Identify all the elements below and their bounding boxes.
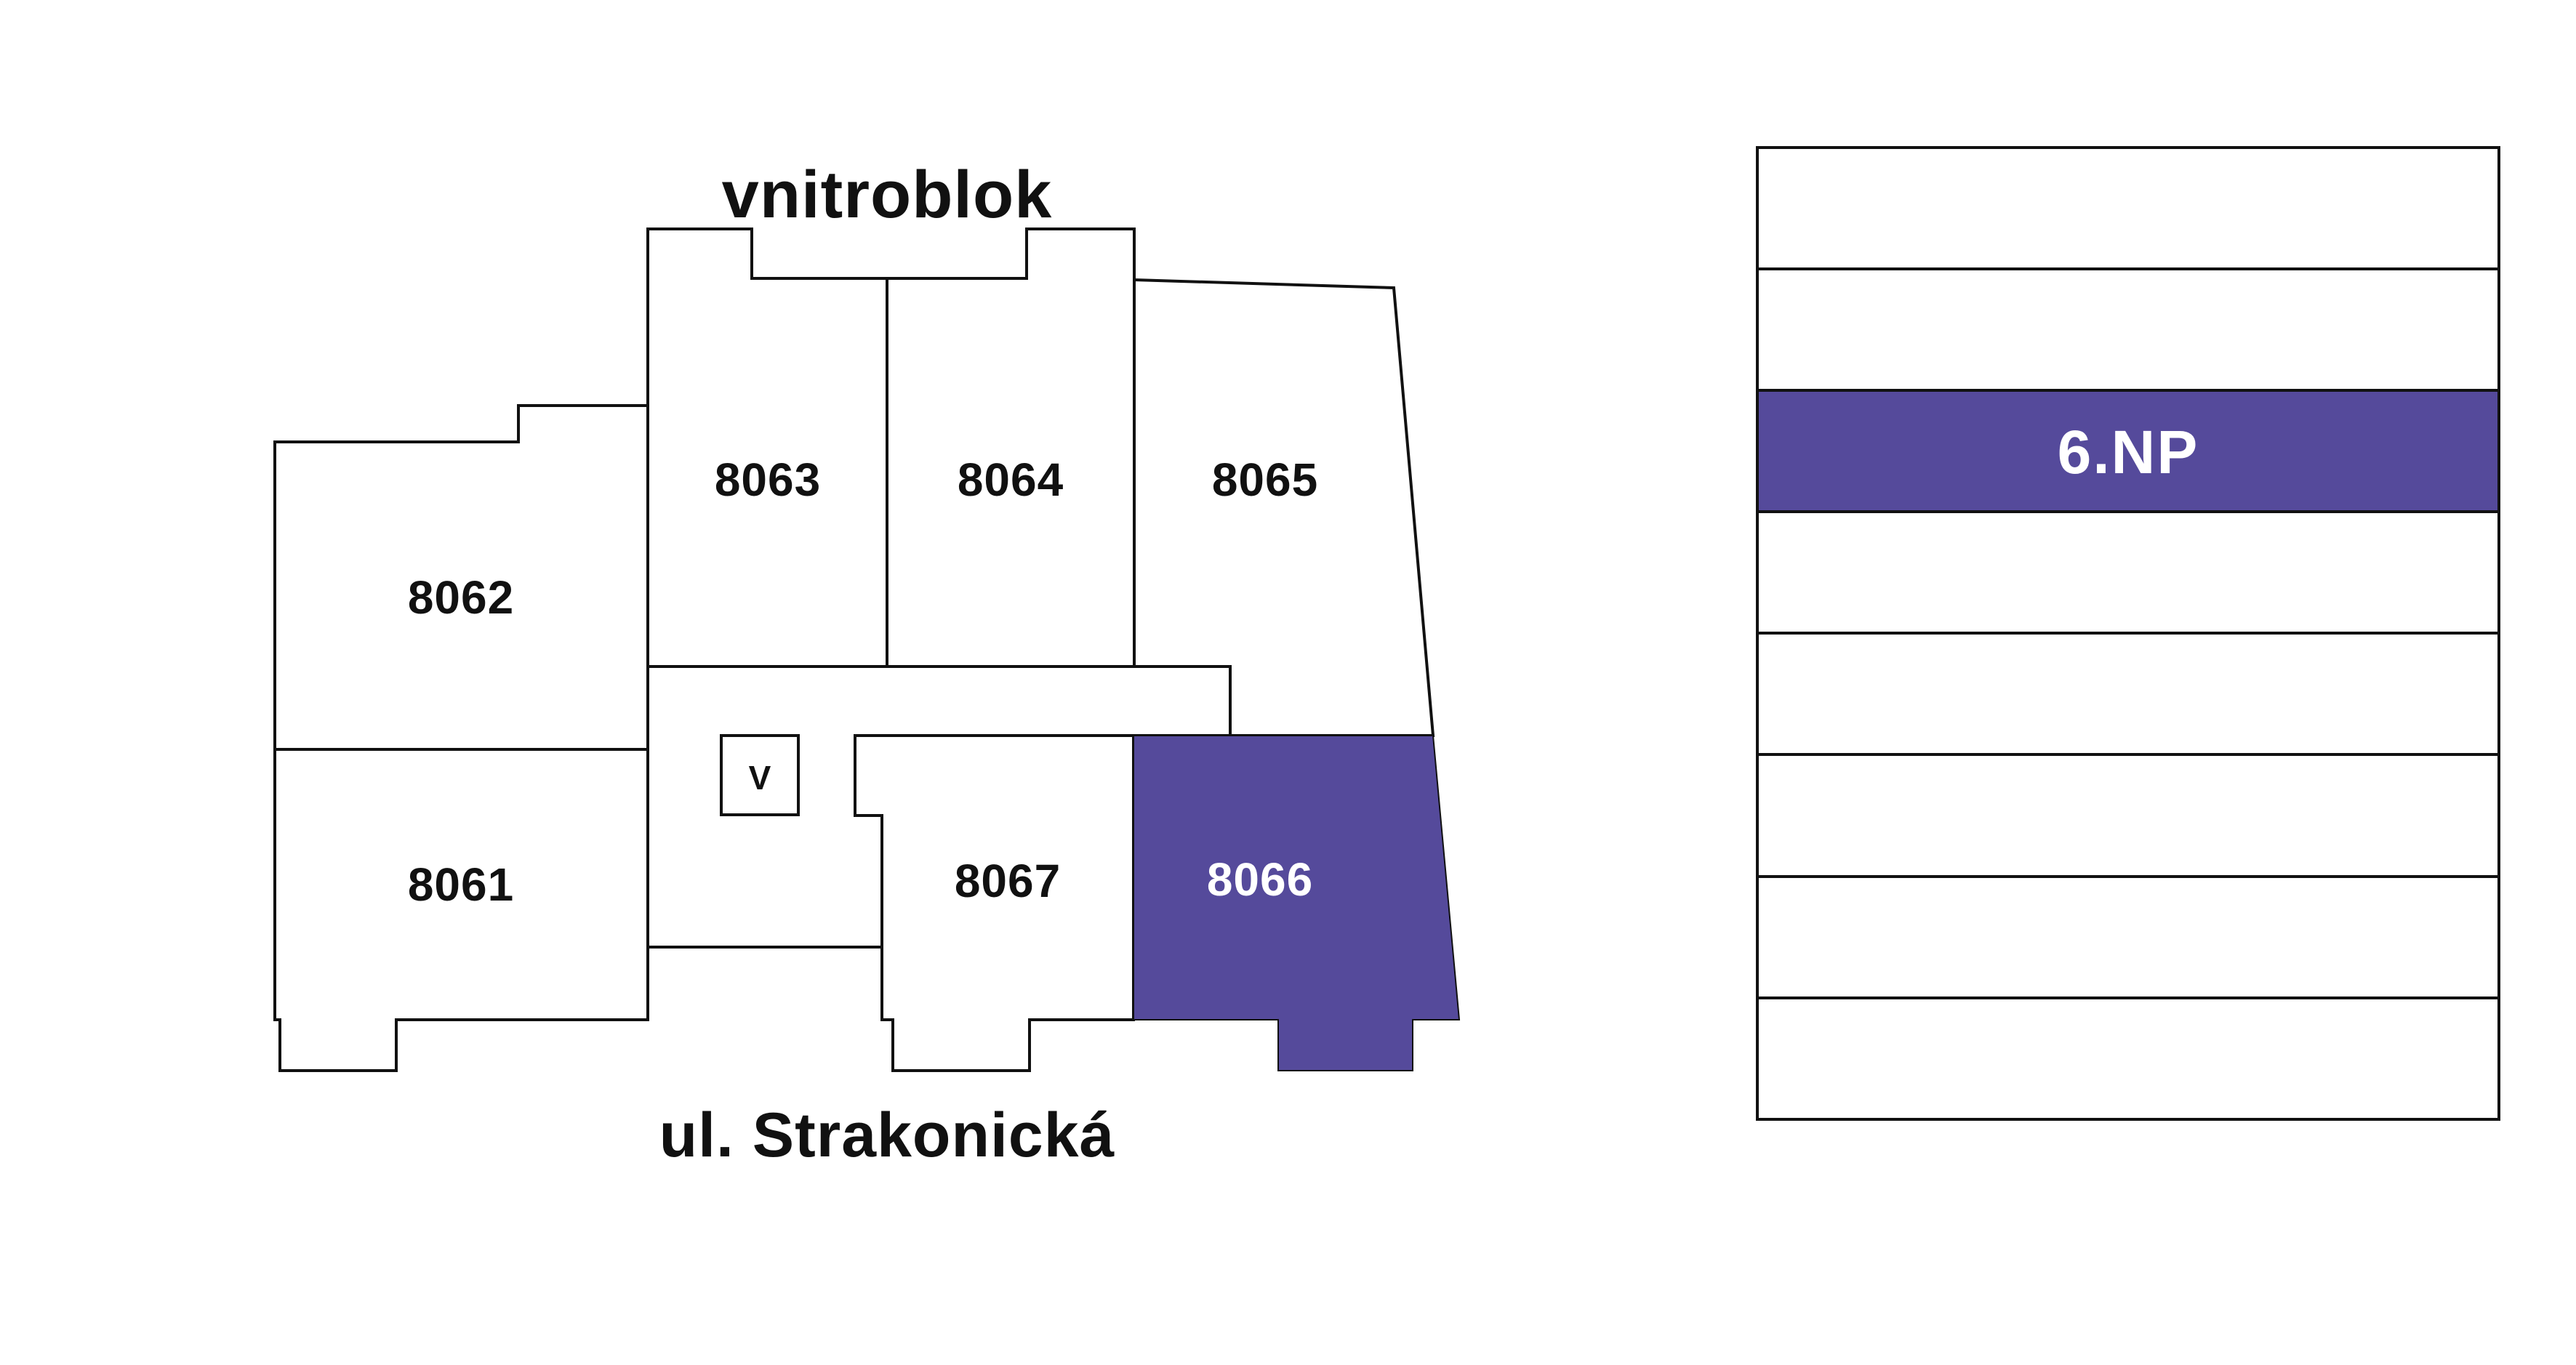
floor-row-1[interactable]: [1757, 269, 2499, 390]
floor-label-6np: 6.NP: [2058, 418, 2199, 486]
unit-label-8067: 8067: [955, 855, 1061, 907]
floor-stack: 6.NP: [1757, 148, 2499, 1119]
unit-label-8062: 8062: [408, 571, 514, 624]
elevator-label: V: [749, 759, 771, 797]
unit-8063[interactable]: [648, 229, 887, 667]
unit-label-8065: 8065: [1212, 454, 1318, 506]
floor-row-4[interactable]: [1757, 633, 2499, 754]
unit-8064[interactable]: [887, 229, 1134, 667]
unit-label-8061: 8061: [408, 858, 514, 911]
page: V 8061 8062 8063 8064 8065 8066 8067 vni…: [0, 0, 2576, 1365]
title-vnitroblok: vnitroblok: [722, 158, 1053, 232]
unit-label-8064: 8064: [958, 454, 1064, 506]
unit-label-8066: 8066: [1207, 853, 1313, 906]
floor-row-3[interactable]: [1757, 512, 2499, 633]
floor-row-7[interactable]: [1757, 998, 2499, 1119]
floor-row-5[interactable]: [1757, 754, 2499, 877]
floor-row-0[interactable]: [1757, 148, 2499, 269]
unit-8065[interactable]: [1134, 280, 1433, 736]
plan-canvas: V 8061 8062 8063 8064 8065 8066 8067 vni…: [0, 0, 2576, 1365]
floor-row-6[interactable]: [1757, 877, 2499, 998]
unit-label-8063: 8063: [715, 454, 821, 506]
title-street-strakonicka: ul. Strakonická: [659, 1100, 1115, 1170]
floor-plan: V 8061 8062 8063 8064 8065 8066 8067 vni…: [275, 158, 1459, 1170]
